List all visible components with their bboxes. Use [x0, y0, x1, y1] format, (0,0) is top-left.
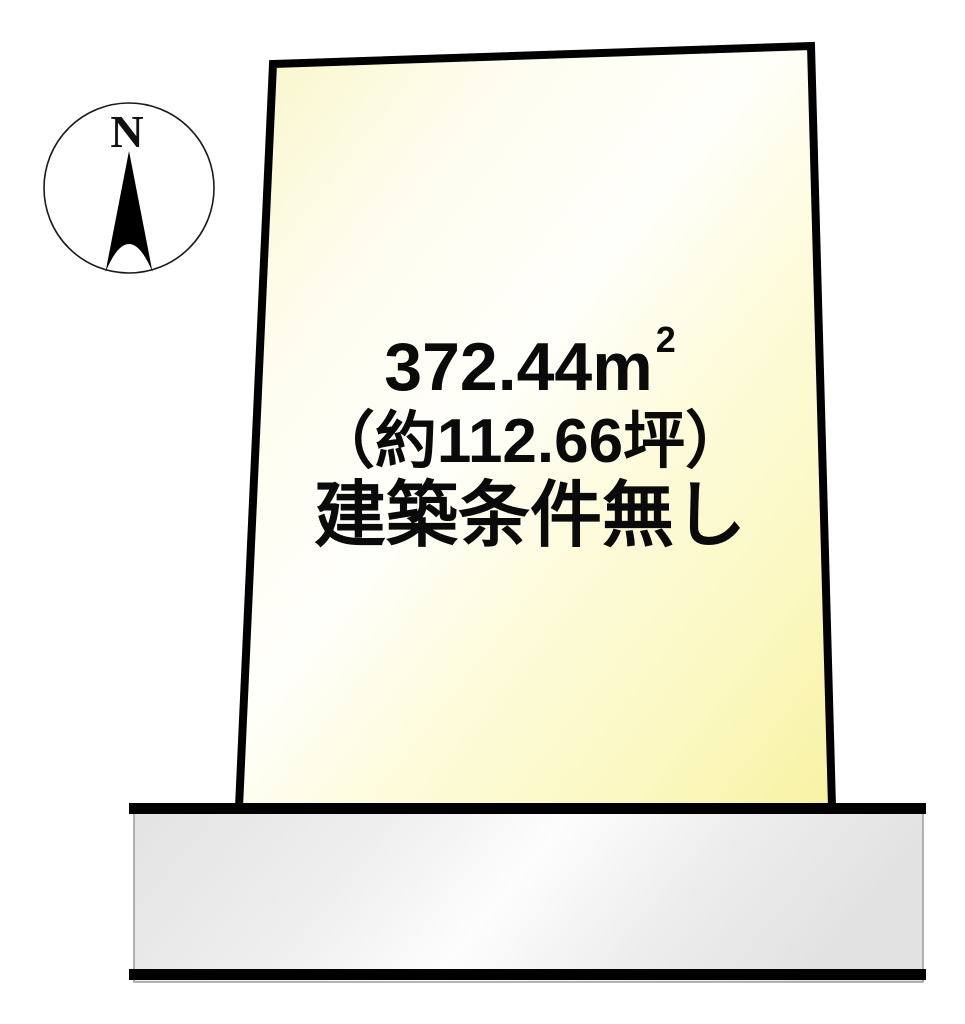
road — [129, 803, 926, 982]
parcel-area-text: 372.44m2 — [384, 319, 675, 405]
parcel-area-unit-exponent: 2 — [656, 319, 676, 360]
compass: N — [44, 103, 214, 273]
diagram-svg: N 372.44m2 （約112.66坪） 建築条件無し — [0, 0, 965, 1024]
road-surface — [134, 812, 923, 982]
parcel-area-unit: m — [592, 329, 652, 405]
land-plot-diagram: N 372.44m2 （約112.66坪） 建築条件無し — [0, 0, 965, 1024]
parcel-tsubo-text: （約112.66坪） — [313, 406, 747, 476]
parcel-area-number: 372.44 — [384, 329, 592, 405]
compass-north-label: N — [110, 106, 143, 157]
road-bottom-edge — [129, 969, 926, 980]
road-top-edge — [129, 803, 926, 814]
parcel-condition-text: 建築条件無し — [314, 476, 746, 556]
